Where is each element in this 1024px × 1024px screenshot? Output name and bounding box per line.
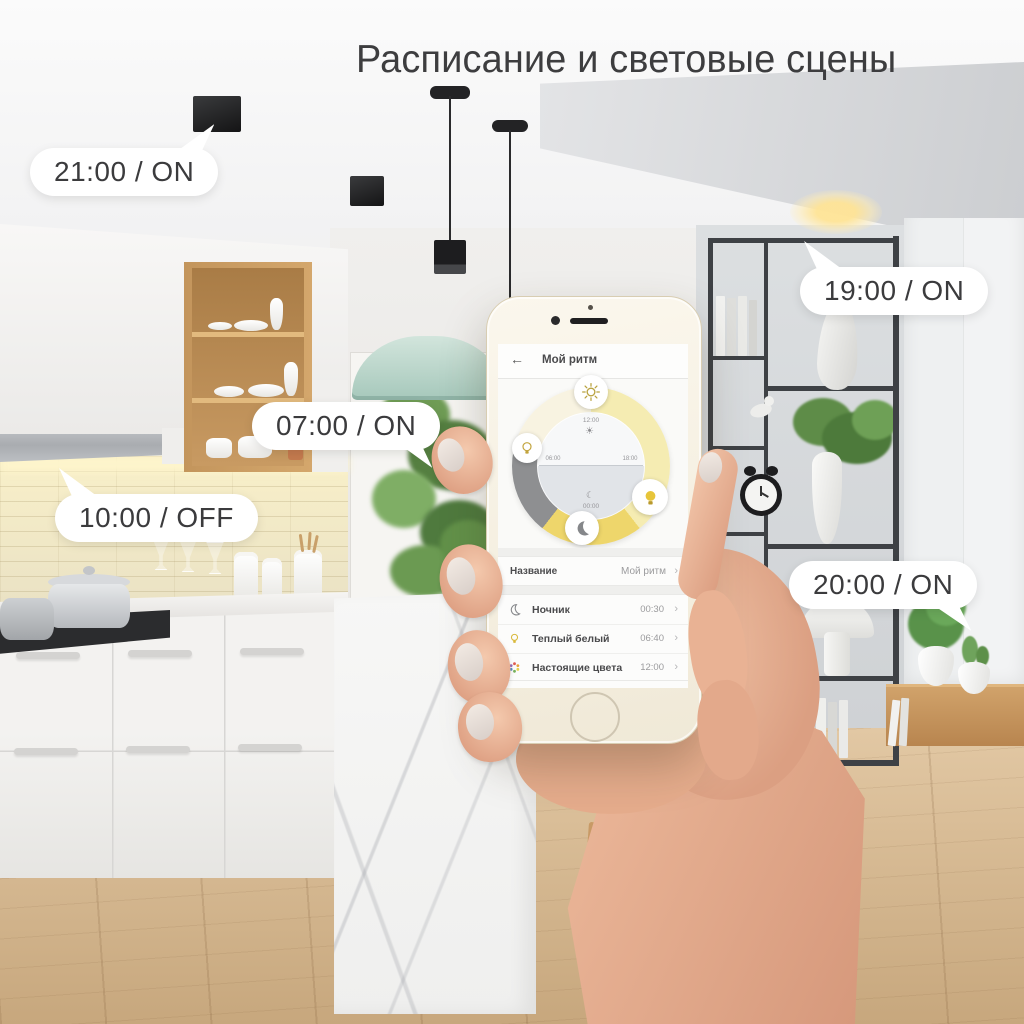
- section-gap: [498, 586, 688, 594]
- white-canister: [262, 558, 282, 600]
- scene-badge-bulb-yellow[interactable]: [632, 479, 668, 515]
- section-gap: [498, 548, 688, 556]
- scene-row-label: Ночник: [532, 604, 570, 616]
- sun-color-icon: [581, 382, 601, 402]
- bird-figurine-head: [764, 396, 774, 406]
- steel-pot: [48, 584, 130, 628]
- shelf-frame-bar: [708, 238, 899, 243]
- ceiling-spot-light: [193, 96, 241, 132]
- earpiece-speaker: [570, 318, 608, 324]
- table-lamp-base: [824, 632, 850, 676]
- dial-time-top: 12:00: [571, 417, 611, 424]
- white-cup: [206, 438, 232, 458]
- schedule-bubble-text: 10:00 / OFF: [79, 502, 234, 533]
- pot-knob: [83, 566, 95, 575]
- proximity-sensor: [588, 305, 593, 310]
- name-row-value: Мой ритм: [621, 566, 666, 577]
- schedule-bubble-0700: 07:00 / ON: [252, 402, 440, 450]
- dial-time-left: 06:00: [540, 456, 566, 462]
- cabinet-handle: [128, 650, 192, 657]
- shelf-frame-bar: [708, 356, 766, 360]
- app-title: Мой ритм: [542, 354, 597, 366]
- scene-badge-bulb-outline[interactable]: [512, 433, 542, 463]
- white-bowl: [248, 384, 284, 397]
- moon-icon: ☾: [586, 490, 594, 501]
- steel-pot: [0, 598, 54, 640]
- white-vase: [284, 362, 298, 396]
- chevron-right-icon: ›: [674, 565, 678, 577]
- scene-row-time: 06:40: [640, 633, 664, 644]
- chevron-right-icon: ›: [674, 603, 678, 615]
- app-header: ← Мой ритм: [498, 344, 688, 379]
- chevron-right-icon: ›: [674, 661, 678, 673]
- book: [716, 296, 725, 356]
- white-vase: [270, 298, 283, 330]
- scene-badge-sun[interactable]: [574, 375, 608, 409]
- back-icon[interactable]: ←: [510, 351, 524, 367]
- utensil-crock: [294, 550, 322, 600]
- schedule-bubble-text: 21:00 / ON: [54, 156, 194, 187]
- moon-icon: [508, 603, 521, 616]
- dial-time-right: 18:00: [617, 456, 643, 462]
- cabinet-handle: [14, 748, 78, 755]
- scene-row-label: Настоящие цвета: [532, 662, 622, 674]
- cabinet-handle: [126, 746, 190, 753]
- scene-row-time: 00:30: [640, 604, 664, 615]
- schedule-bubble-2000: 20:00 / ON: [789, 561, 977, 609]
- book: [727, 298, 736, 356]
- white-canister: [234, 552, 258, 600]
- phone-screen: ← Мой ритм 12:00 ☀ 06:00 18:00 ☾ 00:00: [498, 344, 688, 688]
- shelf-plant-foliage: [852, 400, 898, 440]
- plate-stack: [208, 322, 232, 330]
- scene-row-warm-white[interactable]: Теплый белый 06:40 ›: [498, 624, 688, 654]
- cabinet-handle: [16, 652, 80, 659]
- cube-pendant-light: [434, 240, 466, 274]
- shelf-board: [192, 332, 304, 337]
- bulb-outline-icon: [519, 440, 535, 456]
- schedule-bubble-text: 07:00 / ON: [276, 410, 416, 441]
- schedule-bubble-2100: 21:00 / ON: [30, 148, 218, 196]
- partial-row: [498, 680, 688, 688]
- home-button[interactable]: [570, 692, 620, 742]
- shelf-frame-bar: [764, 544, 899, 549]
- bulb-yellow-icon: [641, 488, 660, 507]
- scene-row-true-colors[interactable]: Настоящие цвета 12:00 ›: [498, 653, 688, 683]
- book: [749, 300, 757, 356]
- upper-cabinet-filler: [162, 428, 186, 464]
- chevron-right-icon: ›: [674, 632, 678, 644]
- dial-midline: [539, 465, 643, 466]
- promo-scene: ← Мой ритм 12:00 ☀ 06:00 18:00 ☾ 00:00: [0, 0, 1024, 1024]
- recessed-ceiling-light: [790, 190, 882, 234]
- front-camera: [551, 316, 560, 325]
- scene-badge-moon[interactable]: [565, 511, 599, 545]
- ceiling-spot-light: [350, 176, 384, 206]
- dial-time-bottom: 00:00: [571, 503, 611, 510]
- scene-row-time: 12:00: [640, 662, 664, 673]
- scene-row-night-light[interactable]: Ночник 00:30 ›: [498, 595, 688, 625]
- white-bowl: [234, 320, 268, 331]
- pendant-cord: [509, 130, 511, 320]
- moon-crescent-icon: [573, 519, 591, 537]
- sun-icon: ☀: [585, 426, 594, 437]
- pendant-cord: [449, 96, 451, 242]
- schedule-bubble-1900: 19:00 / ON: [800, 267, 988, 315]
- book: [839, 700, 848, 758]
- name-row-label: Название: [510, 566, 557, 577]
- book: [738, 296, 747, 356]
- scene-list: Ночник 00:30 › Теплый белый 06:40 ›: [498, 594, 688, 683]
- schedule-bubble-text: 19:00 / ON: [824, 275, 964, 306]
- schedule-bubble-text: 20:00 / ON: [813, 569, 953, 600]
- white-bowl: [214, 386, 244, 397]
- page-title: Расписание и световые сцены: [356, 38, 896, 82]
- schedule-bubble-1000: 10:00 / OFF: [55, 494, 258, 542]
- bulb-icon: [508, 632, 521, 645]
- scene-name-row[interactable]: Название Мой ритм ›: [498, 556, 688, 586]
- scene-row-label: Теплый белый: [532, 633, 610, 645]
- cabinet-handle: [240, 648, 304, 655]
- cabinet-handle: [238, 744, 302, 751]
